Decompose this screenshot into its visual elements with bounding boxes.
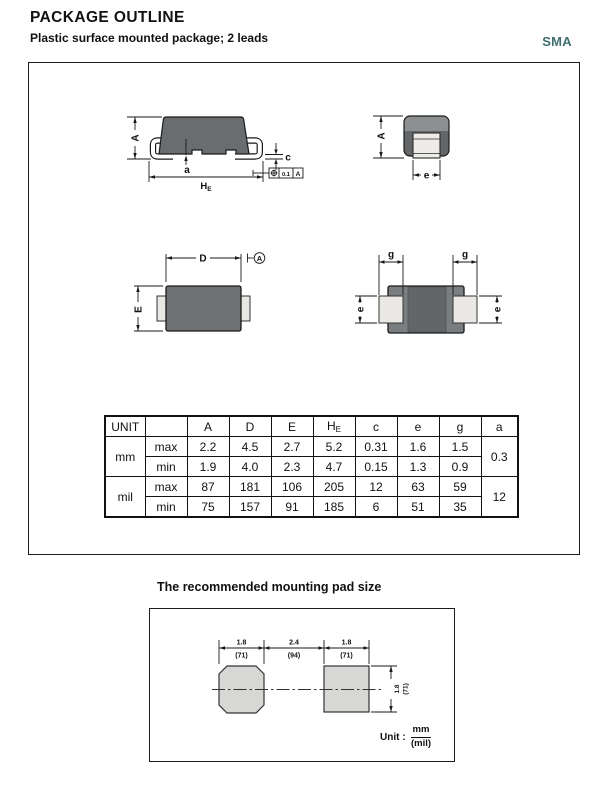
- cell-mil-max-HE: 205: [313, 477, 355, 497]
- unit-denominator: (mil): [411, 738, 432, 750]
- cell-mm-max-e: 1.6: [397, 437, 439, 457]
- pad-side-dim-mil: (71): [403, 683, 410, 695]
- page-title: PACKAGE OUTLINE: [30, 9, 185, 27]
- cell-mil-min-HE: 185: [313, 497, 355, 518]
- col-header-E: E: [271, 416, 313, 437]
- mounting-pad-right: [324, 666, 369, 712]
- mounting-pad-box: 1.8 (71) 2.4 (94) 1.8 (71) 1.8 (71: [149, 608, 455, 762]
- package-outline-drawings: A a HE: [29, 63, 578, 411]
- bottom-pad-right: [453, 296, 477, 323]
- position-tolerance-icon: [271, 170, 278, 177]
- front-dim-HE: [149, 161, 263, 182]
- end-lead: [413, 133, 440, 158]
- bottom-view: g g e e: [355, 250, 504, 334]
- col-header-D: D: [229, 416, 271, 437]
- front-dim-a-label: a: [184, 165, 190, 176]
- cell-mm-min-A: 1.9: [187, 457, 229, 477]
- cell-mil-max-c: 12: [355, 477, 397, 497]
- col-header-c: c: [355, 416, 397, 437]
- unit-note-prefix: Unit :: [380, 732, 406, 743]
- bound-header: [145, 416, 187, 437]
- pad-dim-right-mm: 1.8: [342, 640, 352, 647]
- bottom-dim-e-right-label: e: [493, 306, 504, 312]
- cell-mil-min-E: 91: [271, 497, 313, 518]
- col-header-HE: HE: [313, 416, 355, 437]
- cell-mm-max-D: 4.5: [229, 437, 271, 457]
- front-dim-c: [265, 143, 283, 170]
- cell-mil-max-e: 63: [397, 477, 439, 497]
- col-header-e: e: [397, 416, 439, 437]
- cell-mm-min-c: 0.15: [355, 457, 397, 477]
- datum-label: A: [257, 254, 263, 263]
- mounting-pad-title: The recommended mounting pad size: [157, 580, 381, 594]
- cell-mm-max-c: 0.31: [355, 437, 397, 457]
- cell-mm-min-g: 0.9: [439, 457, 481, 477]
- tolerance-value: 0.1: [282, 172, 291, 178]
- package-code-badge: SMA: [542, 34, 572, 49]
- table-row: mm max 2.2 4.5 2.7 5.2 0.31 1.6 1.5 0.3: [105, 437, 518, 457]
- bottom-pad-left: [379, 296, 403, 323]
- bound-min: min: [145, 497, 187, 518]
- pad-side-dim-labels: 1.8 (71): [394, 683, 410, 695]
- bottom-dim-g-right-label: g: [462, 250, 468, 261]
- top-dim-D-label: D: [199, 254, 206, 265]
- bound-max: max: [145, 437, 187, 457]
- cell-mil-max-g: 59: [439, 477, 481, 497]
- cell-mm-min-e: 1.3: [397, 457, 439, 477]
- col-header-g: g: [439, 416, 481, 437]
- bound-max: max: [145, 477, 187, 497]
- bottom-dim-g-left-label: g: [388, 250, 394, 261]
- end-view: A e: [373, 116, 449, 182]
- cell-mil-min-e: 51: [397, 497, 439, 518]
- top-dim-E-label: E: [134, 306, 145, 313]
- cell-mm-a: 0.3: [481, 437, 518, 477]
- cell-mil-min-D: 157: [229, 497, 271, 518]
- unit-numerator: mm: [411, 725, 432, 738]
- front-view: A a HE: [127, 117, 303, 193]
- table-row: min 1.9 4.0 2.3 4.7 0.15 1.3 0.9: [105, 457, 518, 477]
- cell-mil-min-g: 35: [439, 497, 481, 518]
- end-dim-A-label: A: [377, 132, 388, 139]
- top-body: [166, 286, 241, 331]
- top-view: D A E: [134, 253, 265, 331]
- end-dim-e-label: e: [424, 171, 430, 182]
- cell-mil-max-D: 181: [229, 477, 271, 497]
- datasheet-page: PACKAGE OUTLINE Plastic surface mounted …: [0, 0, 608, 788]
- unit-mm: mm: [105, 437, 145, 477]
- pad-dim-gap-mm: 2.4: [289, 640, 299, 647]
- bound-min: min: [145, 457, 187, 477]
- cell-mil-max-A: 87: [187, 477, 229, 497]
- bottom-body-center: [408, 287, 446, 332]
- cell-mm-min-E: 2.3: [271, 457, 313, 477]
- pad-dim-gap-mil: (94): [288, 653, 300, 660]
- table-row: mil max 87 181 106 205 12 63 59 12: [105, 477, 518, 497]
- tolerance-datum: A: [296, 171, 301, 178]
- unit-note: Unit : mm (mil): [380, 725, 431, 750]
- pad-side-dim-mm: 1.8: [394, 684, 401, 693]
- outline-drawing-box: A a HE: [28, 62, 580, 555]
- top-lead-left: [157, 296, 166, 321]
- cell-mil-min-A: 75: [187, 497, 229, 518]
- dimension-table: UNIT A D E HE c e g a mm max 2.2 4.5 2.7…: [104, 415, 519, 518]
- unit-mil: mil: [105, 477, 145, 518]
- end-body-top-face: [404, 116, 449, 131]
- cell-mm-max-g: 1.5: [439, 437, 481, 457]
- bottom-dim-e-left-label: e: [356, 306, 367, 312]
- page-subtitle: Plastic surface mounted package; 2 leads: [30, 31, 268, 45]
- cell-mil-min-c: 6: [355, 497, 397, 518]
- front-body: [159, 117, 249, 154]
- pad-dim-left-mil: (71): [235, 653, 247, 660]
- cell-mm-min-D: 4.0: [229, 457, 271, 477]
- col-header-A: A: [187, 416, 229, 437]
- cell-mil-max-E: 106: [271, 477, 313, 497]
- front-dim-c-label: c: [285, 153, 291, 164]
- pad-dim-left-mm: 1.8: [237, 640, 247, 647]
- table-row: min 75 157 91 185 6 51 35: [105, 497, 518, 518]
- top-lead-right: [241, 296, 250, 321]
- cell-mm-min-HE: 4.7: [313, 457, 355, 477]
- col-header-a: a: [481, 416, 518, 437]
- cell-mm-max-A: 2.2: [187, 437, 229, 457]
- front-dim-HE-label: HE: [200, 181, 212, 193]
- cell-mm-max-HE: 5.2: [313, 437, 355, 457]
- unit-header: UNIT: [105, 416, 145, 437]
- unit-fraction: mm (mil): [411, 725, 432, 750]
- cell-mm-max-E: 2.7: [271, 437, 313, 457]
- front-dim-A-label: A: [131, 134, 142, 141]
- pad-dim-right-mil: (71): [340, 653, 352, 660]
- cell-mil-a: 12: [481, 477, 518, 518]
